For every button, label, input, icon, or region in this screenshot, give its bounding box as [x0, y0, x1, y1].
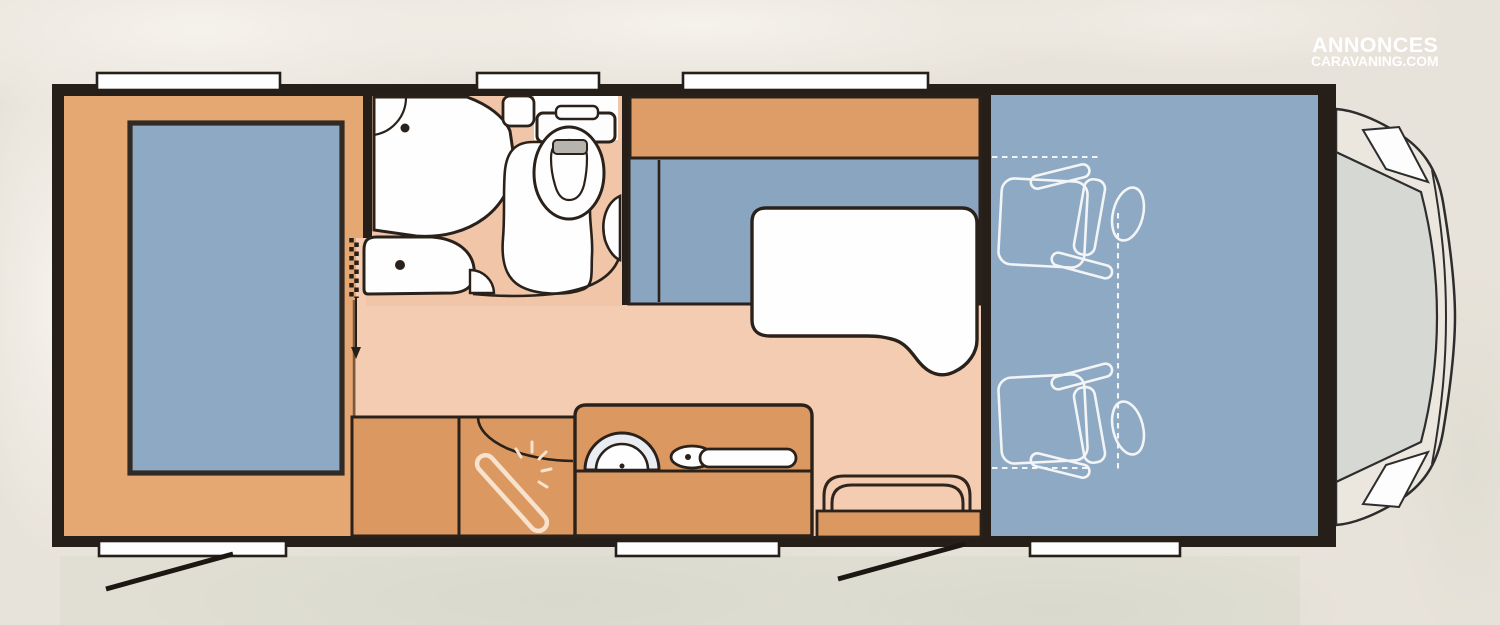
svg-text:CARAVANING.COM: CARAVANING.COM [1311, 54, 1439, 69]
